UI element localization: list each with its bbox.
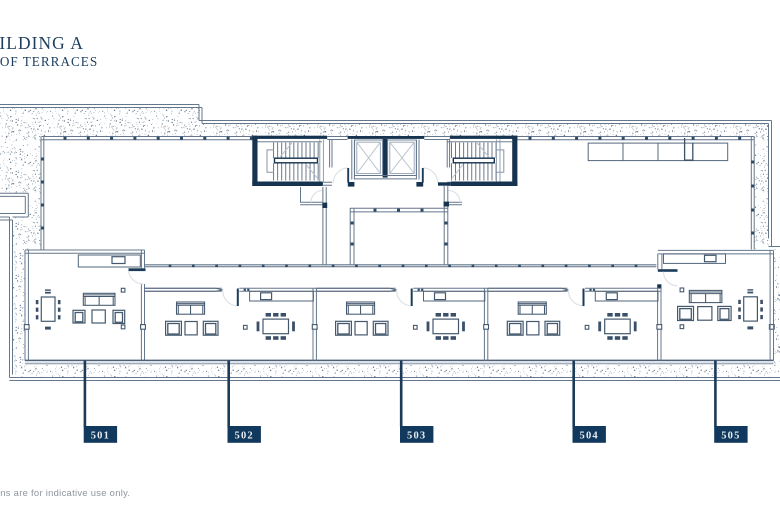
svg-text:501: 501: [91, 431, 110, 442]
svg-text:504: 504: [580, 431, 599, 442]
svg-text:502: 502: [235, 431, 254, 442]
svg-text:505: 505: [721, 431, 740, 442]
svg-text:503: 503: [407, 431, 426, 442]
